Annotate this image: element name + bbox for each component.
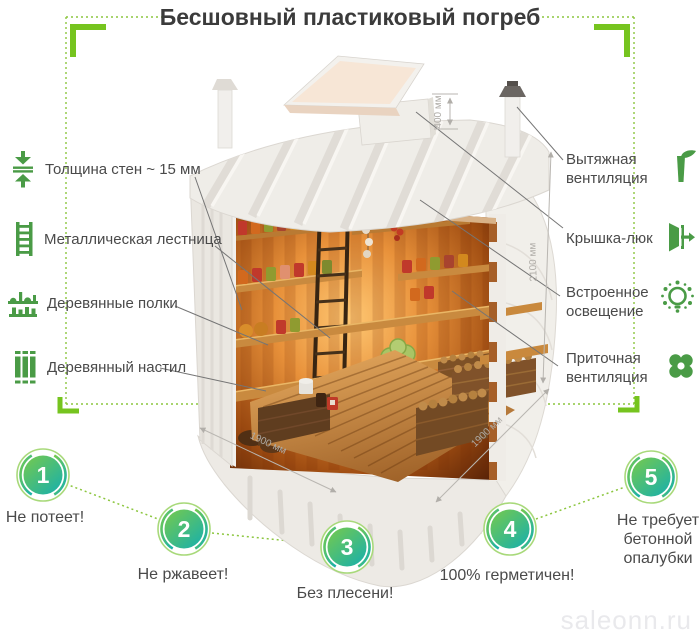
- badge-3: 3: [319, 519, 375, 575]
- wall-thickness-icon: [10, 150, 36, 188]
- page-title: Бесшовный пластиковый погреб: [0, 4, 700, 31]
- feature-label: Крышка-люк: [566, 229, 666, 248]
- badge-number: 4: [504, 516, 517, 542]
- shelves-icon: [8, 289, 38, 318]
- feature-ladder: Металлическая лестница: [14, 220, 222, 258]
- feature-label: Вытяжная вентиляция: [566, 150, 666, 188]
- feature-intake-vent: Приточная вентиляция: [566, 349, 666, 387]
- badge-2: 2: [156, 501, 212, 557]
- feature-wall-thickness: Толщина стен ~ 15 мм: [10, 150, 201, 188]
- cellar-interior: [228, 199, 548, 482]
- badge-label-2: Не ржавеет!: [123, 565, 243, 584]
- feature-label: Встроенное освещение: [566, 283, 666, 321]
- feature-hatch: Крышка-люк: [566, 229, 666, 248]
- light-icon: [660, 280, 695, 317]
- exhaust-vent-icon: [666, 150, 696, 184]
- feature-label: Деревянные полки: [47, 295, 178, 312]
- badge-1: 1: [15, 447, 71, 503]
- badge-number: 2: [178, 516, 191, 542]
- badge-number: 3: [341, 534, 354, 560]
- feature-label: Деревянный настил: [47, 359, 186, 376]
- badge-4: 4: [482, 501, 538, 557]
- badge-5: 5: [623, 449, 679, 505]
- infographic: 400 мм 2100 мм 1900 мм 1900 мм Бесшовный…: [0, 0, 700, 640]
- hatch-icon: [664, 222, 696, 253]
- badge-label-1: Не потеет!: [0, 508, 105, 527]
- badge-number: 1: [37, 462, 50, 488]
- feature-label: Приточная вентиляция: [566, 349, 666, 387]
- ladder-icon: [14, 222, 35, 256]
- dimension-hatch-height: 400 мм: [433, 95, 444, 128]
- badge-label-5: Не требует бетонной опалубки: [612, 511, 700, 568]
- badge-number: 5: [645, 464, 658, 490]
- feature-label: Металлическая лестница: [44, 231, 222, 248]
- badge-label-3: Без плесени!: [285, 584, 405, 603]
- feature-lighting: Встроенное освещение: [566, 283, 666, 321]
- watermark: saleonn.ru: [561, 605, 692, 636]
- feature-label: Толщина стен ~ 15 мм: [45, 161, 201, 178]
- feature-planks: Деревянный настил: [13, 348, 186, 386]
- vent-pipe-left: [212, 79, 238, 148]
- badge-label-4: 100% герметичен!: [417, 566, 597, 585]
- feature-exhaust-vent: Вытяжная вентиляция: [566, 150, 666, 188]
- dimension-body-height: 2100 мм: [527, 242, 539, 281]
- intake-vent-icon: [667, 352, 695, 380]
- planks-icon: [13, 351, 38, 384]
- feature-shelves: Деревянные полки: [8, 284, 178, 322]
